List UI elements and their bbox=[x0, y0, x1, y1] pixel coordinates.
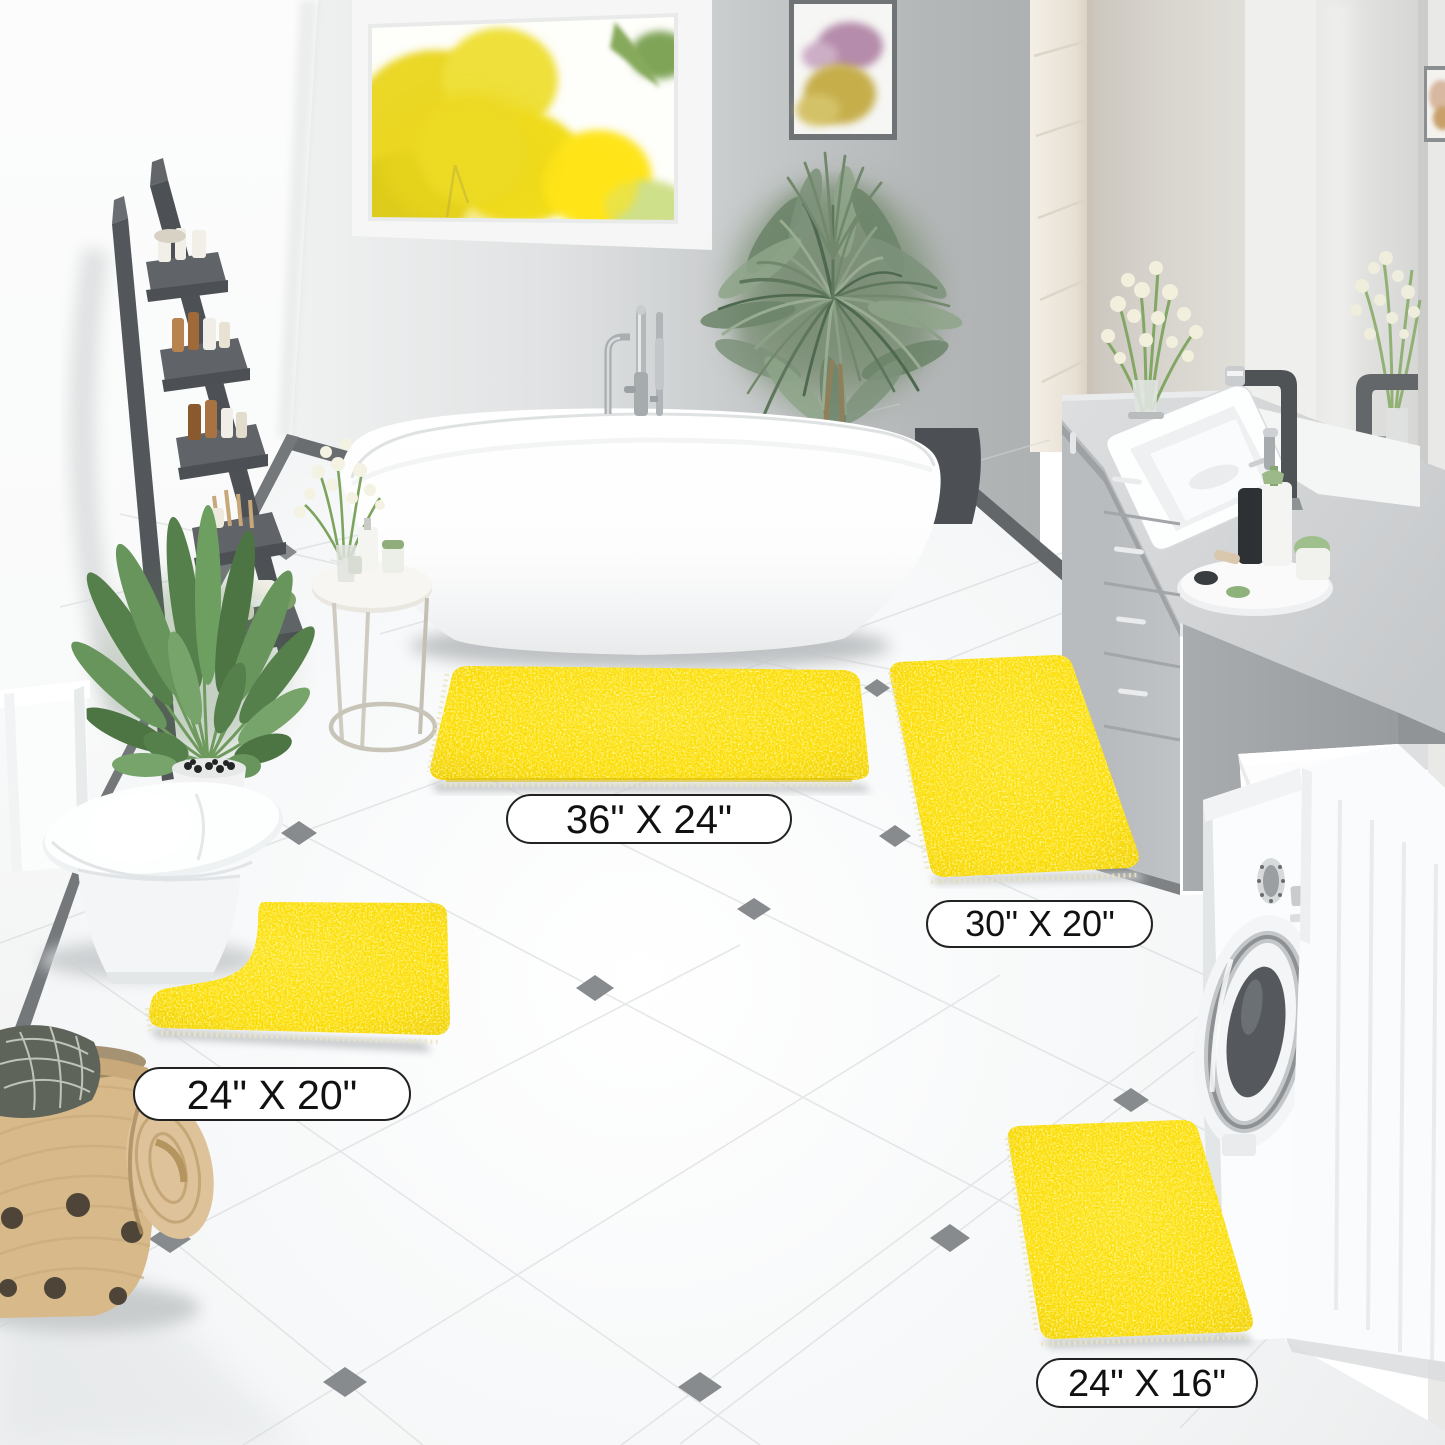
svg-text:30" X 20": 30" X 20" bbox=[965, 903, 1115, 944]
svg-text:36" X 24": 36" X 24" bbox=[566, 798, 732, 842]
svg-text:24" X 20": 24" X 20" bbox=[187, 1072, 357, 1118]
svg-text:24" X 16": 24" X 16" bbox=[1068, 1363, 1226, 1405]
